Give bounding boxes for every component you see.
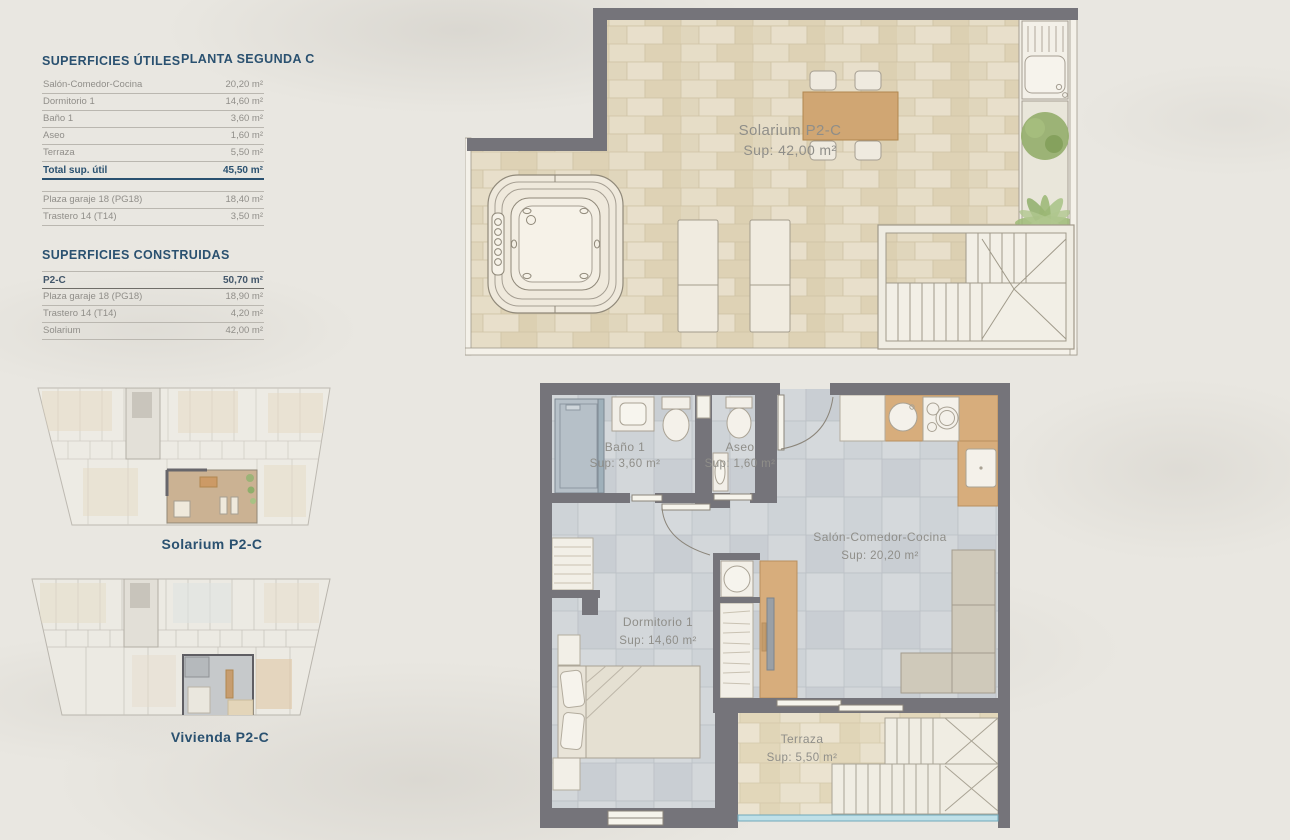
aseo-name: Aseo <box>726 440 755 454</box>
row-label: Dormitorio 1 <box>43 97 95 108</box>
construidas-table: P2-C 50,70 m² Plaza garaje 18 (PG18) 18,… <box>42 271 264 340</box>
utiles-title: SUPERFICIES ÚTILES <box>42 54 180 68</box>
row-value: 1,60 m² <box>231 131 263 142</box>
dormitorio-sup: Sup: 14,60 m² <box>619 635 696 647</box>
table-row: Solarium 42,00 m² <box>42 323 264 340</box>
row-value: 4,20 m² <box>231 309 263 320</box>
row-label: Baño 1 <box>43 114 73 125</box>
construidas-title: SUPERFICIES CONSTRUIDAS <box>42 248 230 262</box>
salon-sup: Sup: 20,20 m² <box>841 550 918 562</box>
row-label: Salón-Comedor-Cocina <box>43 80 142 91</box>
table-row: Terraza 5,50 m² <box>42 145 264 162</box>
toilet <box>726 397 752 408</box>
shelf-closet <box>552 538 593 590</box>
hob <box>923 397 959 441</box>
staircase <box>878 225 1074 349</box>
table-row: Trastero 14 (T14) 3,50 m² <box>42 209 264 226</box>
row-value: 50,70 m² <box>223 275 263 287</box>
row-label: Terraza <box>43 148 75 159</box>
sliding-door <box>714 494 752 500</box>
mini-plan-vivienda <box>28 575 338 725</box>
row-label: Plaza garaje 18 (PG18) <box>43 292 142 303</box>
row-label: P2-C <box>43 275 66 287</box>
table-row: Baño 1 3,60 m² <box>42 111 264 128</box>
round-sink <box>889 403 917 431</box>
sliding-glass-door <box>839 705 903 711</box>
bed <box>558 666 700 758</box>
sliding-glass-door <box>777 700 841 706</box>
table-row: Plaza garaje 18 (PG18) 18,40 m² <box>42 192 264 209</box>
table-row: Trastero 14 (T14) 4,20 m² <box>42 306 264 323</box>
bano-sup: Sup: 3,60 m² <box>590 458 661 470</box>
glass-balustrade <box>738 815 998 821</box>
row-value: 3,60 m² <box>231 114 263 125</box>
table-row: Salón-Comedor-Cocina 20,20 m² <box>42 77 264 94</box>
row-value: 45,50 m² <box>223 165 263 177</box>
row-value: 14,60 m² <box>226 97 264 108</box>
table-row: P2-C 50,70 m² <box>42 271 264 290</box>
area-tables: SUPERFICIES ÚTILES PLANTA SEGUNDA C Saló… <box>42 52 264 340</box>
total-row: Total sup. útil 45,50 m² <box>42 162 264 181</box>
row-value: 18,40 m² <box>226 195 264 206</box>
row-value: 5,50 m² <box>231 148 263 159</box>
row-label: Total sup. útil <box>43 165 107 177</box>
highlighted-solarium-unit <box>167 470 257 523</box>
mini-vivienda-caption: Vivienda P2-C <box>120 729 320 745</box>
solarium-floor-plan: Solarium P2-C Sup: 42,00 m² <box>465 8 1078 358</box>
solarium-room-name: Solarium P2-C <box>739 122 842 139</box>
mini-plan-solarium <box>28 383 338 535</box>
row-label: Trastero 14 (T14) <box>43 212 117 223</box>
table-row: Plaza garaje 18 (PG18) 18,90 m² <box>42 289 264 306</box>
utiles-header: SUPERFICIES ÚTILES PLANTA SEGUNDA C <box>42 52 264 70</box>
solarium-room-sup: Sup: 42,00 m² <box>743 142 836 158</box>
terraza-name: Terraza <box>781 732 824 746</box>
row-value: 42,00 m² <box>226 326 264 337</box>
tv <box>767 598 774 670</box>
row-label: Solarium <box>43 326 81 337</box>
construidas-header: SUPERFICIES CONSTRUIDAS <box>42 246 264 264</box>
nightstand <box>553 758 580 790</box>
nightstand <box>558 635 580 665</box>
terraza-sup: Sup: 5,50 m² <box>767 752 838 764</box>
sliding-door <box>632 495 662 501</box>
utiles-table: Salón-Comedor-Cocina 20,20 m² Dormitorio… <box>42 77 264 180</box>
table-row: Aseo 1,60 m² <box>42 128 264 145</box>
row-value: 20,20 m² <box>226 80 264 91</box>
planta-title: PLANTA SEGUNDA C <box>181 52 315 66</box>
table-row: Dormitorio 1 14,60 m² <box>42 94 264 111</box>
vivienda-floor-plan: Baño 1 Sup: 3,60 m² Aseo Sup: 1,60 m² Sa… <box>540 383 1010 833</box>
shower <box>555 399 602 493</box>
mini-solarium-caption: Solarium P2-C <box>112 536 312 552</box>
row-label: Aseo <box>43 131 65 142</box>
salon-name: Salón-Comedor-Cocina <box>813 530 946 544</box>
aseo-sup: Sup: 1,60 m² <box>705 458 776 470</box>
toilet <box>662 397 690 409</box>
row-value: 3,50 m² <box>231 212 263 223</box>
hot-tub <box>488 175 623 313</box>
dormitorio-name: Dormitorio 1 <box>623 615 693 629</box>
row-value: 18,90 m² <box>226 292 264 303</box>
bano-name: Baño 1 <box>605 440 645 454</box>
anexos-table: Plaza garaje 18 (PG18) 18,40 m² Trastero… <box>42 191 264 226</box>
row-label: Trastero 14 (T14) <box>43 309 117 320</box>
brochure-page: SUPERFICIES ÚTILES PLANTA SEGUNDA C Saló… <box>0 0 1290 840</box>
vent-shaft <box>697 396 710 418</box>
highlighted-vivienda-unit <box>183 655 253 717</box>
row-label: Plaza garaje 18 (PG18) <box>43 195 142 206</box>
